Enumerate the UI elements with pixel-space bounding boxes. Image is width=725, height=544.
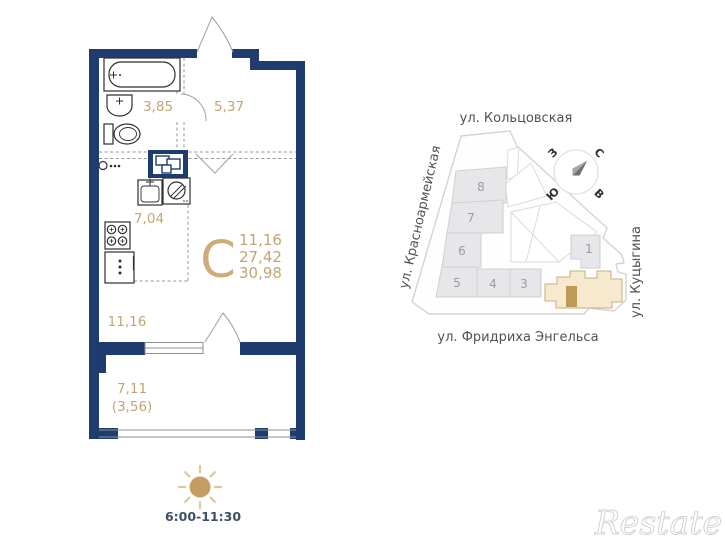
stove-icon — [105, 222, 130, 249]
unit-type-letter: С — [200, 231, 236, 290]
bathroom-door-swing — [181, 94, 206, 121]
kitchen-sink-icon — [138, 179, 162, 206]
kitchen-area-label: 7,04 — [134, 211, 164, 227]
compass-east: В — [591, 186, 606, 201]
watermark: Restate — [594, 503, 722, 542]
entrance-door-swing — [197, 17, 233, 52]
vent-shaft-icon — [148, 150, 188, 178]
balcony-area-label: 7,11 — [117, 381, 147, 397]
fixtures — [99, 58, 190, 283]
unit-total-area: 30,98 — [239, 264, 282, 282]
wall-segment — [296, 342, 305, 440]
building-number-8: 8 — [477, 180, 485, 194]
compass-rose: З С Ю В — [544, 146, 607, 204]
wall-segment — [296, 61, 305, 355]
apartment-position-marker — [566, 286, 577, 307]
floor-plan: 3,85 5,37 7,04 11,16 7,11 (3,56) С 11,16… — [89, 17, 305, 440]
street-label-right: ул. Куцыгина — [629, 226, 644, 318]
building-number-1: 1 — [585, 242, 593, 256]
building-number-6: 6 — [458, 244, 466, 258]
living-area-label: 11,16 — [108, 314, 147, 330]
building-number-4: 4 — [489, 277, 497, 291]
building-number-3: 3 — [520, 277, 528, 291]
floorplan-canvas: 3,85 5,37 7,04 11,16 7,11 (3,56) С 11,16… — [0, 0, 725, 544]
unit-living-area: 11,16 — [239, 231, 282, 249]
bathtub-icon — [104, 58, 180, 91]
insolation-time: 6:00-11:30 — [165, 509, 241, 524]
highlighted-building — [545, 271, 622, 308]
balcony-door-swing — [205, 313, 240, 342]
street-label-top: ул. Кольцовская — [460, 111, 573, 126]
washing-machine-icon — [163, 178, 190, 204]
wall-segment — [89, 353, 106, 373]
unit-stats: 11,16 27,42 30,98 — [239, 231, 282, 282]
refrigerator-icon — [105, 252, 134, 283]
plumbing-outlet-icon — [99, 162, 120, 170]
site-plan: 8 7 6 5 4 3 1 З С Ю В ул. Кольцовская — [397, 111, 644, 345]
building-number-5: 5 — [453, 276, 461, 290]
street-label-bottom: ул. Фридриха Энгельса — [437, 330, 598, 345]
hall-area-label: 5,37 — [214, 99, 244, 115]
hall-opening-marker — [196, 154, 233, 173]
building-number-7: 7 — [467, 211, 475, 225]
wall-segment — [89, 342, 145, 355]
bathroom-area-label: 3,85 — [143, 99, 173, 115]
wall-segment — [240, 342, 305, 355]
toilet-icon — [104, 124, 140, 144]
sun-icon — [179, 466, 221, 508]
balcony-reduced-area-label: (3,56) — [112, 399, 153, 415]
floorplan-page: 3,85 5,37 7,04 11,16 7,11 (3,56) С 11,16… — [0, 0, 725, 544]
wall-segment — [89, 49, 197, 58]
sink-icon — [107, 95, 132, 116]
sun-diagram: 6:00-11:30 — [165, 466, 241, 524]
building-7 — [447, 200, 503, 233]
